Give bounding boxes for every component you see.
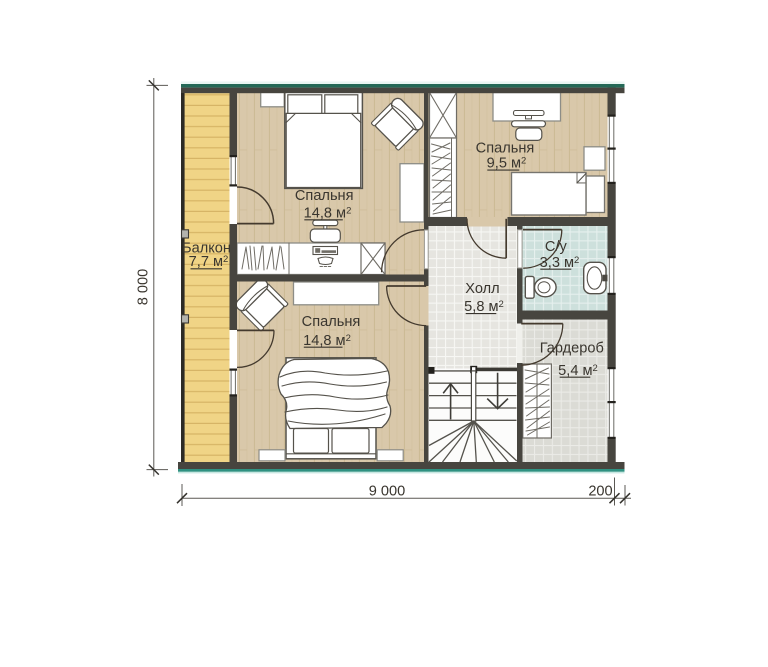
svg-text:9 000: 9 000 [369, 484, 406, 500]
svg-text:Спальня: Спальня [295, 188, 354, 204]
svg-text:14,8 м2: 14,8 м2 [303, 333, 351, 349]
svg-text:5,8 м2: 5,8 м2 [464, 299, 504, 315]
svg-text:14,8 м2: 14,8 м2 [304, 205, 352, 221]
svg-text:9,5 м2: 9,5 м2 [487, 156, 527, 172]
svg-text:5,4 м2: 5,4 м2 [558, 363, 598, 379]
svg-text:Спальня: Спальня [476, 140, 535, 156]
svg-text:200: 200 [588, 484, 612, 500]
svg-text:3,3 м2: 3,3 м2 [540, 255, 580, 271]
svg-text:7,7 м2: 7,7 м2 [189, 254, 229, 270]
svg-text:Гардероб: Гардероб [540, 340, 604, 356]
svg-text:Холл: Холл [465, 281, 499, 297]
svg-text:8 000: 8 000 [136, 269, 152, 306]
svg-text:Спальня: Спальня [302, 314, 361, 330]
svg-text:С/у: С/у [545, 239, 568, 255]
